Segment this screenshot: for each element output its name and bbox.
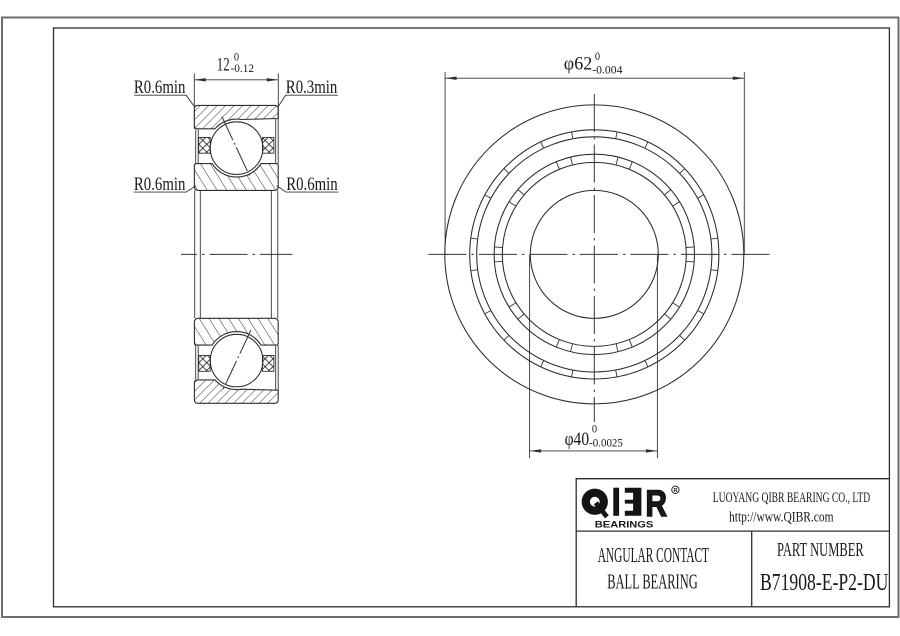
svg-text:φ62: φ62 bbox=[564, 54, 592, 75]
svg-text:12: 12 bbox=[217, 55, 230, 76]
svg-text:ANGULAR CONTACT: ANGULAR CONTACT bbox=[598, 543, 709, 567]
svg-text:-0.004: -0.004 bbox=[592, 62, 622, 76]
svg-text:B71908-E-P2-DU: B71908-E-P2-DU bbox=[760, 570, 888, 596]
svg-text:-0.12: -0.12 bbox=[231, 61, 255, 75]
svg-text:BEARINGS: BEARINGS bbox=[595, 519, 654, 529]
svg-text:BALL BEARING: BALL BEARING bbox=[607, 570, 698, 594]
svg-text:-0.0025: -0.0025 bbox=[589, 435, 623, 449]
svg-text:R: R bbox=[674, 488, 678, 494]
svg-text:LUOYANG QIBR BEARING CO., LTD: LUOYANG QIBR BEARING CO., LTD bbox=[713, 490, 871, 506]
svg-text:0: 0 bbox=[595, 49, 600, 63]
svg-text:0: 0 bbox=[592, 421, 597, 435]
svg-text:PART NUMBER: PART NUMBER bbox=[777, 539, 864, 561]
svg-text:http://www.QIBR.com: http://www.QIBR.com bbox=[729, 510, 834, 526]
svg-text:φ40: φ40 bbox=[565, 429, 590, 450]
svg-text:R: R bbox=[646, 483, 668, 524]
